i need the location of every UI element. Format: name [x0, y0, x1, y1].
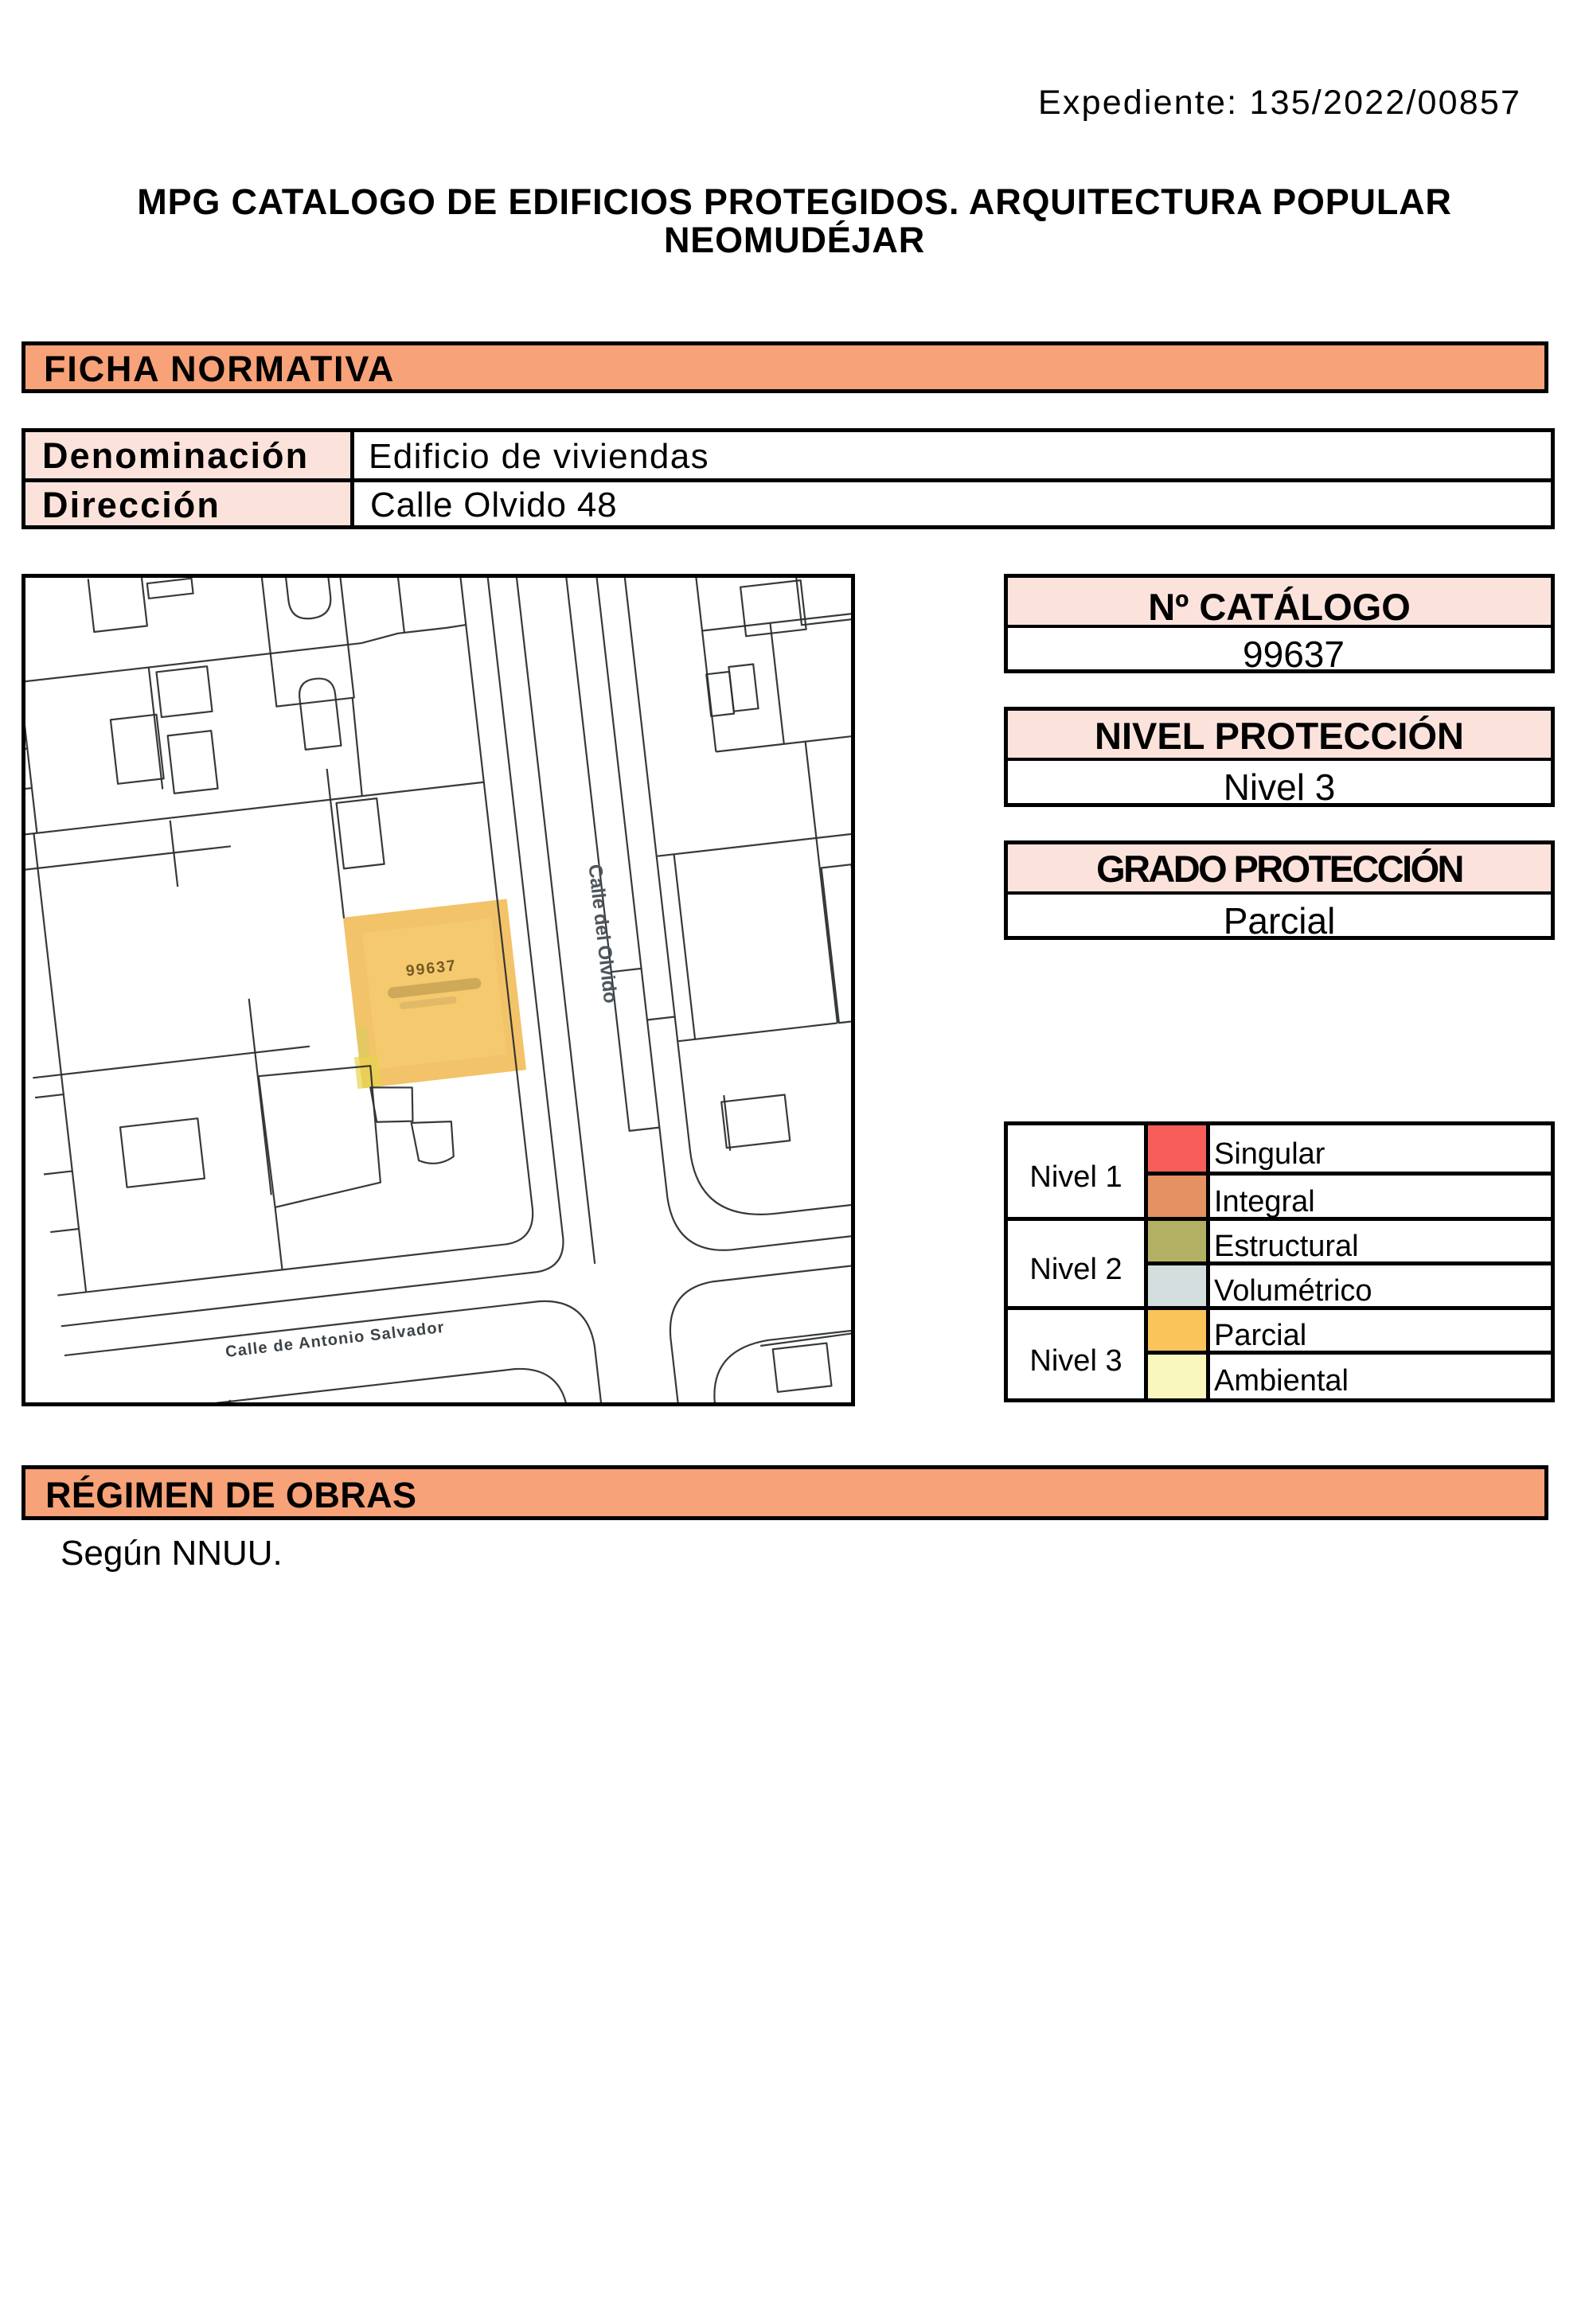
svg-text:Calle del Olvido: Calle del Olvido [584, 864, 621, 1004]
